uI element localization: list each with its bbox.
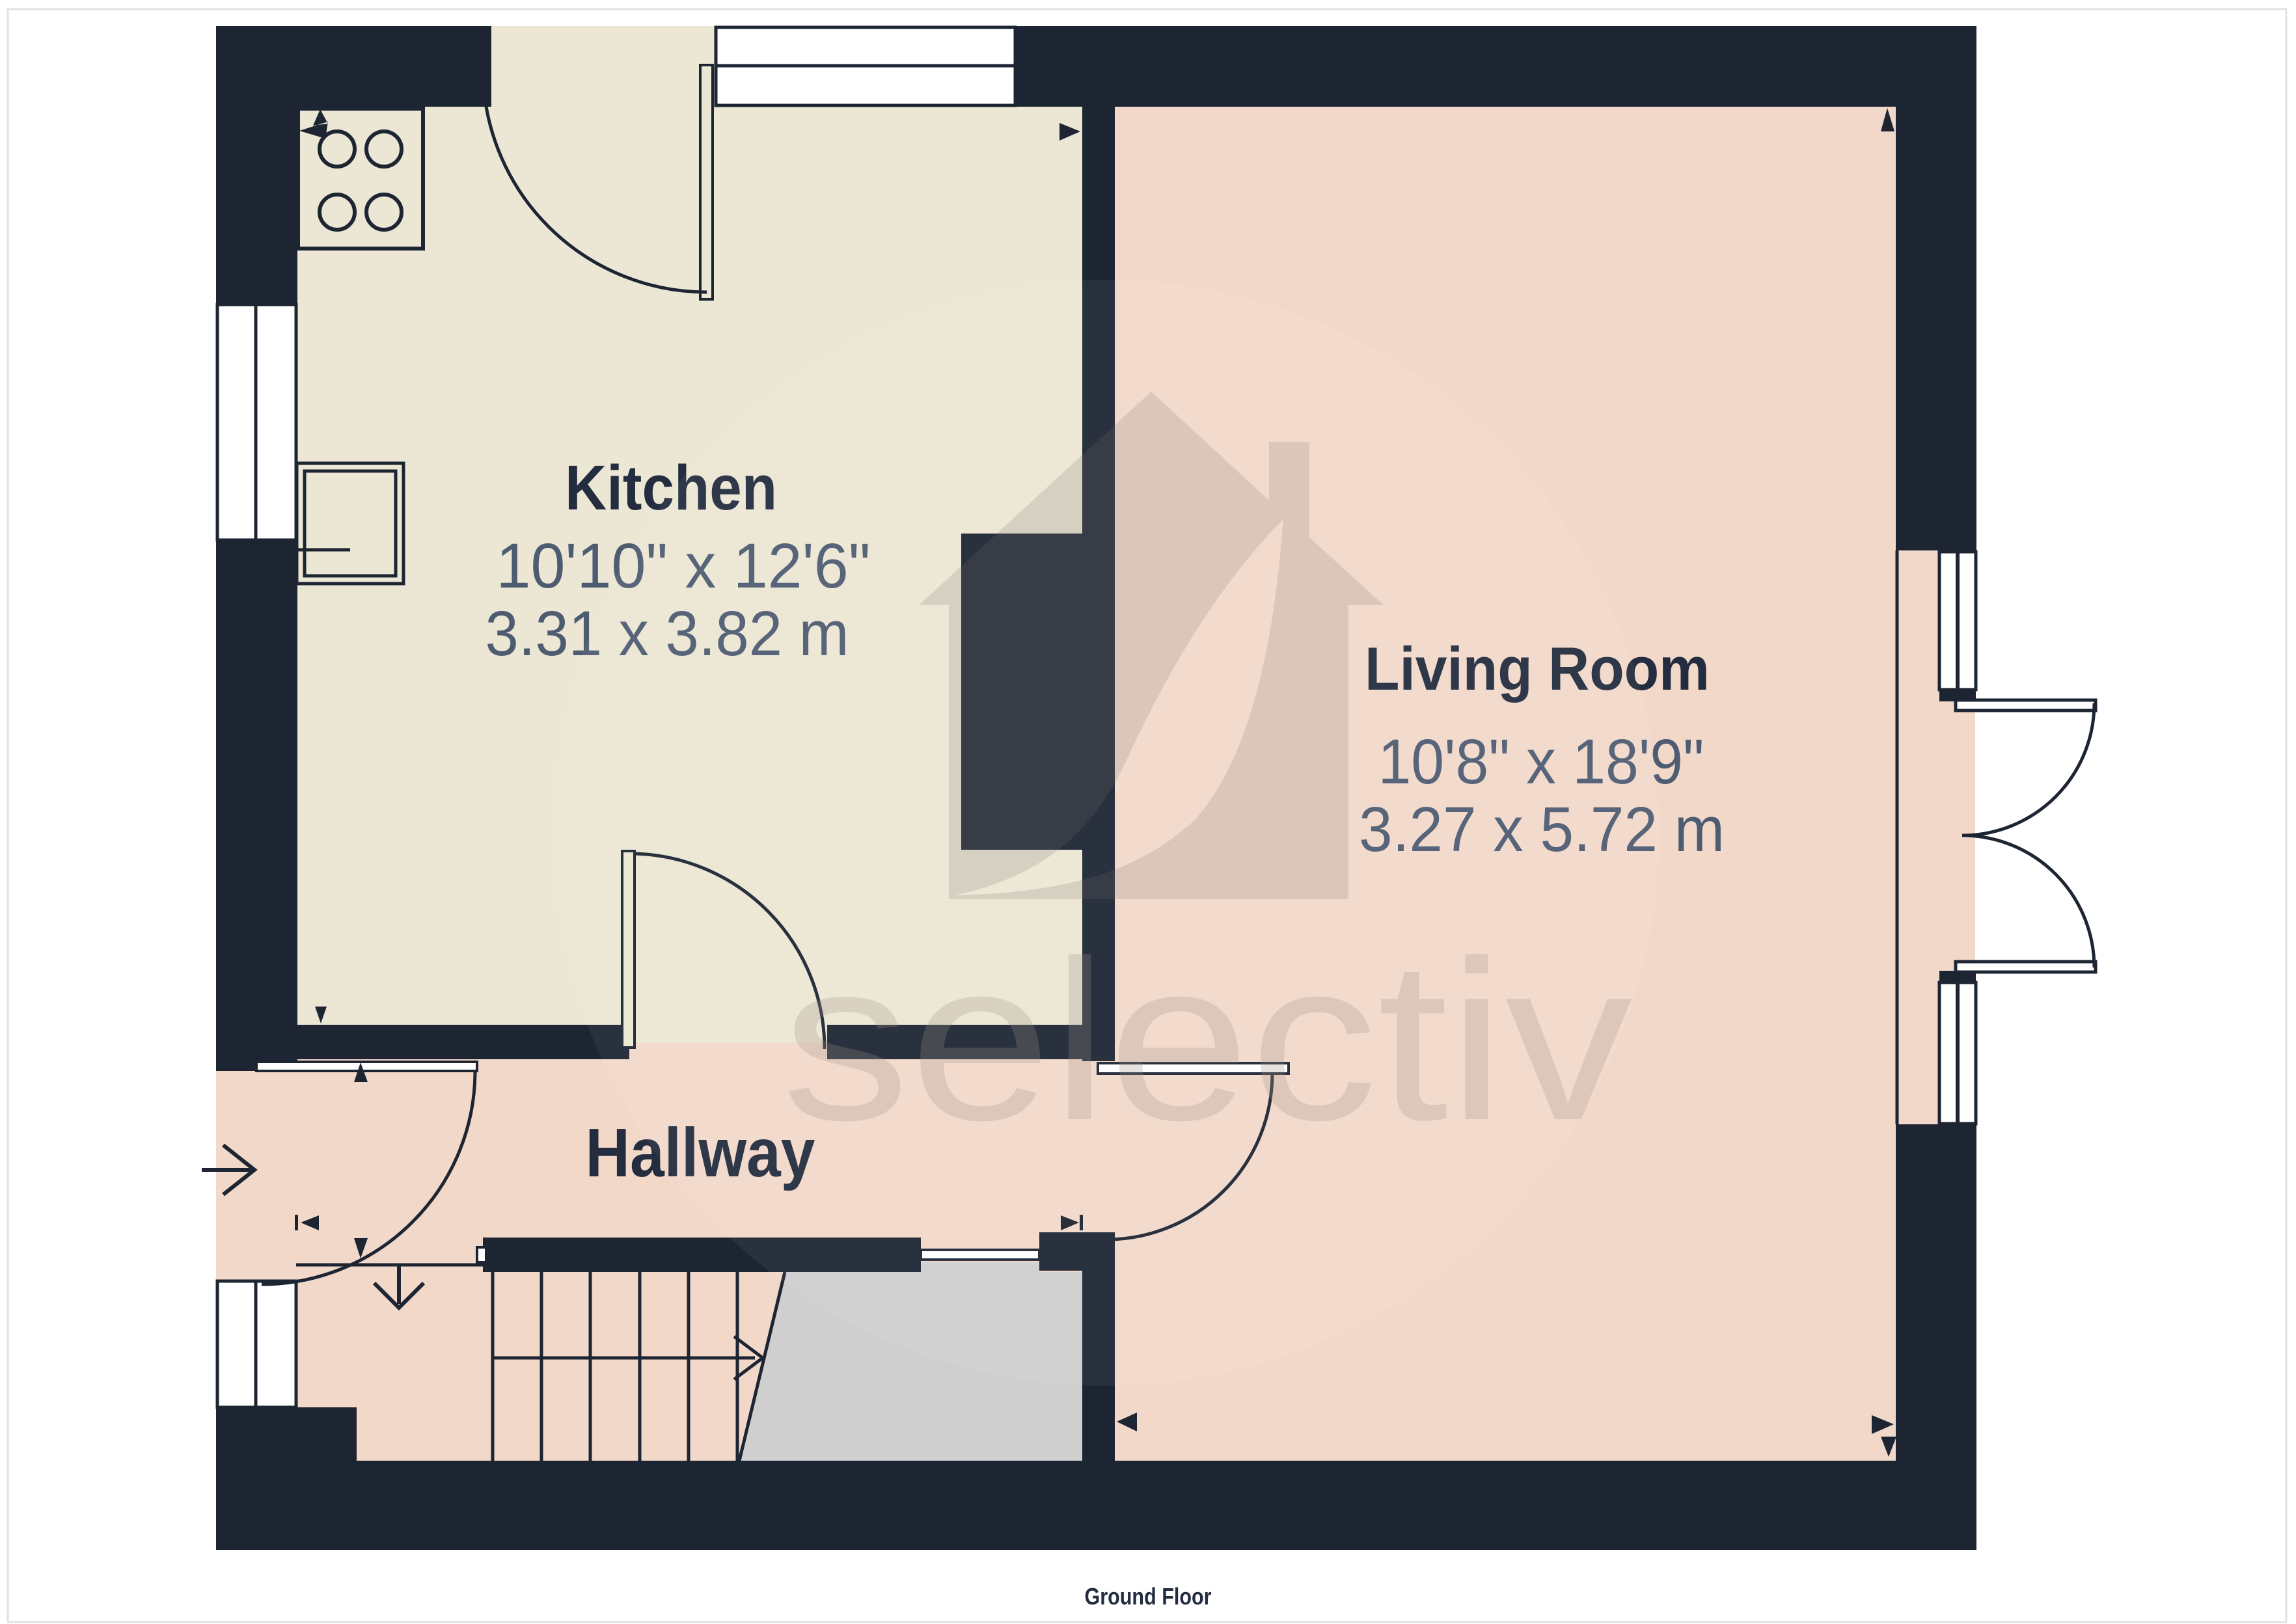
svg-text:selectiv: selectiv [782,913,1633,1168]
svg-text:Ground Floor: Ground Floor [1085,1583,1212,1610]
